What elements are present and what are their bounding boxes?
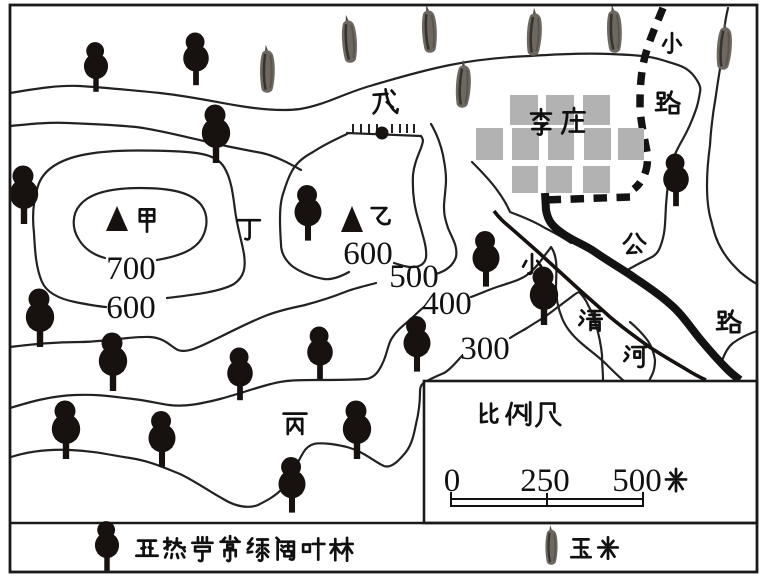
svg-text:600: 600 bbox=[106, 290, 156, 326]
svg-text:600: 600 bbox=[343, 236, 393, 272]
svg-text:300: 300 bbox=[460, 331, 510, 367]
svg-text:700: 700 bbox=[106, 251, 156, 287]
svg-text:500: 500 bbox=[612, 463, 662, 499]
svg-text:0: 0 bbox=[444, 463, 461, 499]
svg-text:400: 400 bbox=[422, 286, 472, 322]
svg-text:250: 250 bbox=[520, 463, 570, 499]
